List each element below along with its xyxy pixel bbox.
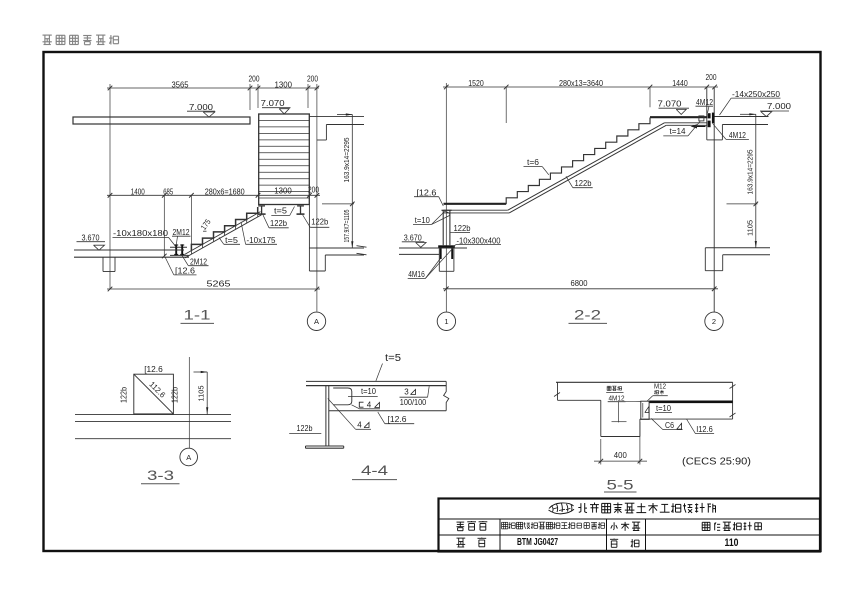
- svg-text:4M12: 4M12: [609, 394, 625, 403]
- svg-text:C6: C6: [665, 421, 674, 430]
- svg-text:400: 400: [614, 451, 627, 460]
- svg-text:t=5: t=5: [274, 206, 287, 215]
- svg-text:1105: 1105: [745, 220, 754, 236]
- svg-text:200: 200: [706, 73, 717, 82]
- svg-text:163.9x14=2295: 163.9x14=2295: [342, 138, 351, 183]
- svg-text:4M16: 4M16: [408, 270, 425, 279]
- svg-text:3: 3: [404, 387, 409, 396]
- svg-text:t=5: t=5: [225, 236, 238, 245]
- svg-text:110: 110: [725, 537, 739, 549]
- svg-text:-10x300x400: -10x300x400: [457, 236, 501, 245]
- svg-text:BTM JG0427: BTM JG0427: [517, 536, 558, 548]
- svg-text:3-3: 3-3: [147, 467, 174, 483]
- svg-text:A: A: [186, 453, 191, 462]
- svg-text:1400: 1400: [131, 187, 145, 196]
- svg-text:7.000: 7.000: [189, 103, 214, 112]
- svg-text:7.070: 7.070: [261, 99, 286, 108]
- svg-text:-10x175: -10x175: [247, 236, 276, 245]
- svg-text:4M12: 4M12: [696, 98, 713, 107]
- svg-text:157.9X7=1105: 157.9X7=1105: [342, 210, 351, 243]
- svg-text:4M12: 4M12: [729, 131, 746, 140]
- svg-text:5-5: 5-5: [607, 477, 634, 493]
- svg-text:1440: 1440: [672, 79, 688, 88]
- svg-text:200: 200: [249, 75, 260, 84]
- svg-text:200: 200: [307, 75, 318, 84]
- svg-text:[12.6: [12.6: [416, 188, 436, 197]
- svg-text:7.000: 7.000: [767, 102, 792, 111]
- svg-text:1: 1: [444, 317, 448, 326]
- svg-text:2M12: 2M12: [190, 258, 207, 267]
- svg-text:A: A: [314, 317, 319, 326]
- svg-text:(CECS 25:90): (CECS 25:90): [682, 457, 751, 468]
- svg-text:[12.6: [12.6: [144, 365, 163, 374]
- svg-text:163.9x14=2295: 163.9x14=2295: [745, 150, 754, 195]
- svg-text:t=10: t=10: [415, 216, 430, 225]
- svg-text:1105: 1105: [197, 386, 206, 402]
- svg-text:2-2: 2-2: [574, 307, 601, 323]
- svg-text:3565: 3565: [172, 80, 189, 89]
- svg-text:5265: 5265: [207, 280, 232, 289]
- svg-text:280x13=3640: 280x13=3640: [559, 79, 603, 88]
- svg-text:122b: 122b: [297, 424, 313, 433]
- svg-text:122b: 122b: [171, 387, 180, 403]
- svg-text:4: 4: [367, 401, 372, 410]
- svg-text:122b: 122b: [311, 218, 328, 227]
- svg-text:7.070: 7.070: [658, 99, 683, 108]
- svg-text:t=6: t=6: [527, 158, 539, 167]
- svg-text:t=5: t=5: [385, 353, 401, 364]
- svg-text:1300: 1300: [275, 80, 293, 89]
- svg-text:200: 200: [308, 185, 319, 194]
- svg-text:122b: 122b: [575, 179, 592, 188]
- svg-text:100/100: 100/100: [400, 398, 427, 407]
- svg-text:2: 2: [712, 317, 716, 326]
- svg-text:1-1: 1-1: [184, 307, 211, 323]
- svg-text:122b: 122b: [270, 219, 287, 228]
- svg-text:t=14: t=14: [670, 127, 686, 136]
- svg-text:-14x250x250: -14x250x250: [732, 90, 780, 99]
- svg-text:2M12: 2M12: [173, 228, 190, 237]
- svg-text:3.670: 3.670: [82, 233, 101, 242]
- svg-text:4: 4: [357, 420, 362, 429]
- svg-text:6800: 6800: [571, 279, 588, 288]
- svg-text:t=10: t=10: [656, 404, 672, 413]
- svg-text:122b: 122b: [454, 224, 471, 233]
- svg-text:I12.6: I12.6: [696, 425, 713, 434]
- svg-text:4-4: 4-4: [361, 462, 388, 478]
- svg-text:685: 685: [163, 187, 173, 196]
- svg-text:[12.6: [12.6: [388, 415, 408, 424]
- svg-text:[12.6: [12.6: [175, 267, 195, 276]
- svg-text:280x6=1680: 280x6=1680: [205, 187, 245, 196]
- svg-text:1520: 1520: [468, 79, 484, 88]
- svg-text:122b: 122b: [120, 387, 129, 403]
- svg-text:3.670: 3.670: [404, 234, 423, 243]
- svg-text:M12: M12: [654, 382, 666, 391]
- svg-text:t=10: t=10: [361, 387, 377, 396]
- svg-text:1300: 1300: [274, 186, 292, 195]
- svg-text:-10x180x180: -10x180x180: [113, 229, 169, 238]
